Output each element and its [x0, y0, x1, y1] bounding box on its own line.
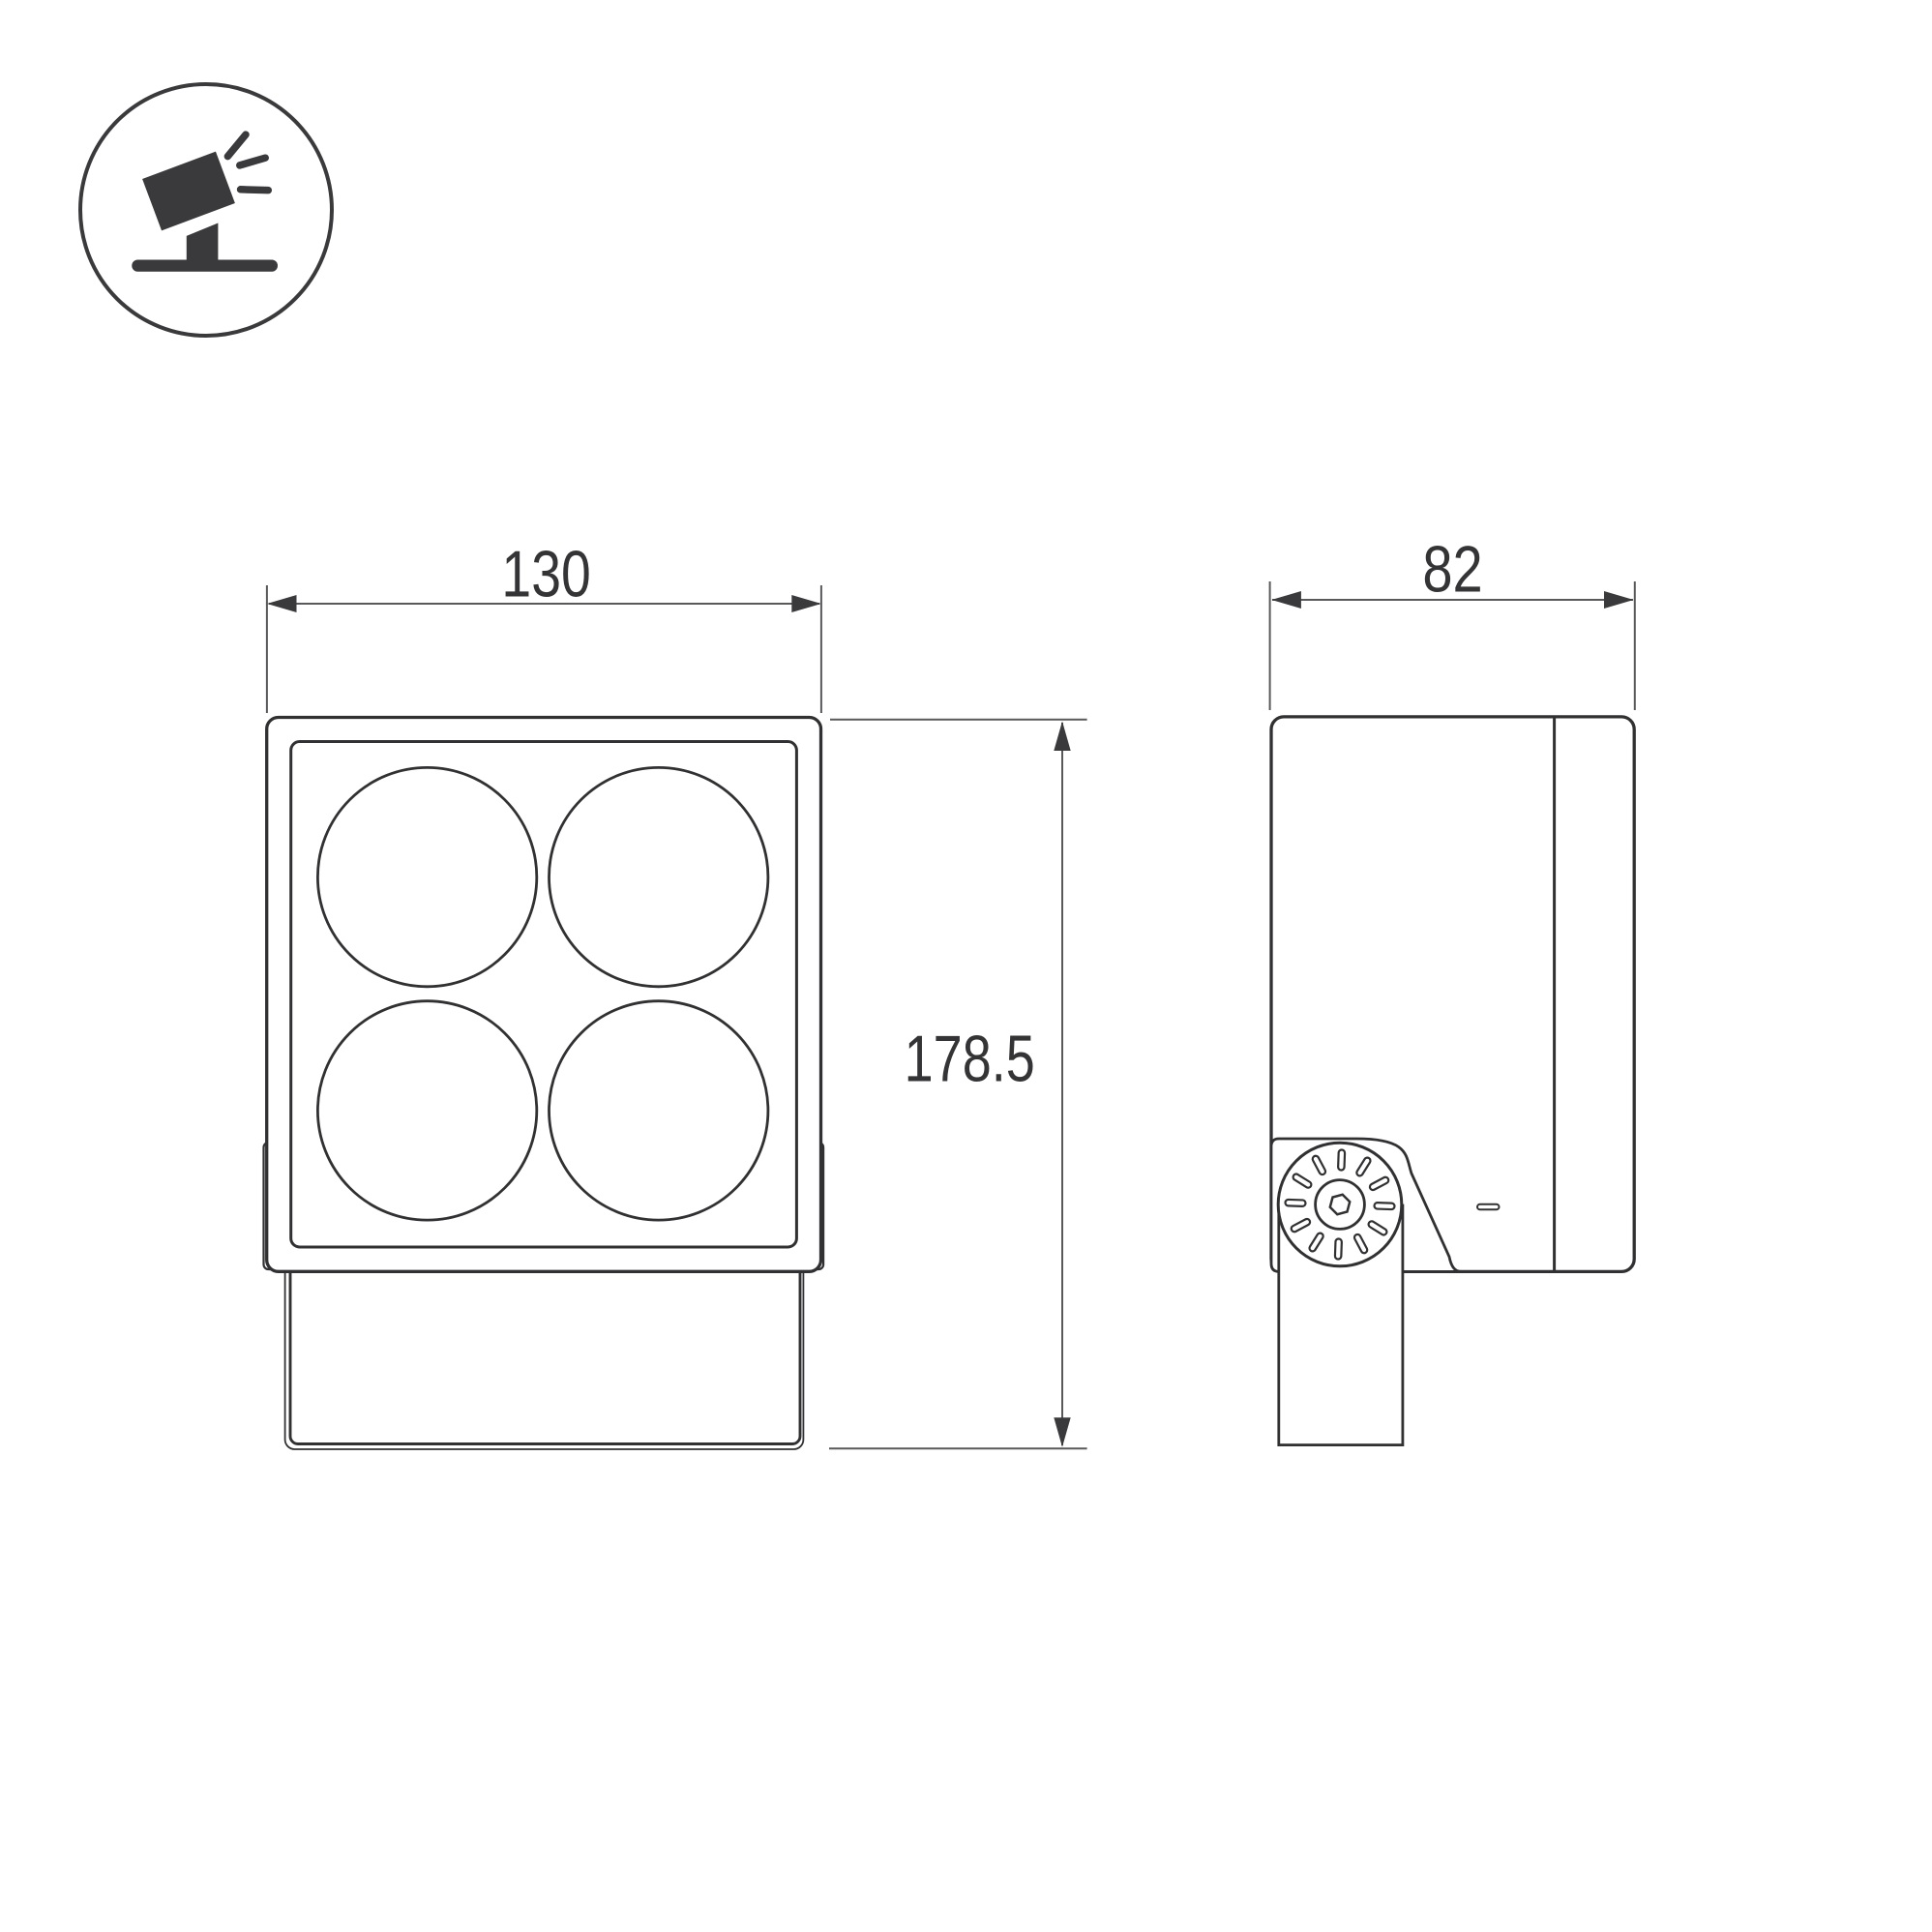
svg-text:130: 130 [501, 538, 590, 610]
svg-text:82: 82 [1422, 534, 1482, 607]
svg-text:178.5: 178.5 [905, 1023, 1035, 1095]
